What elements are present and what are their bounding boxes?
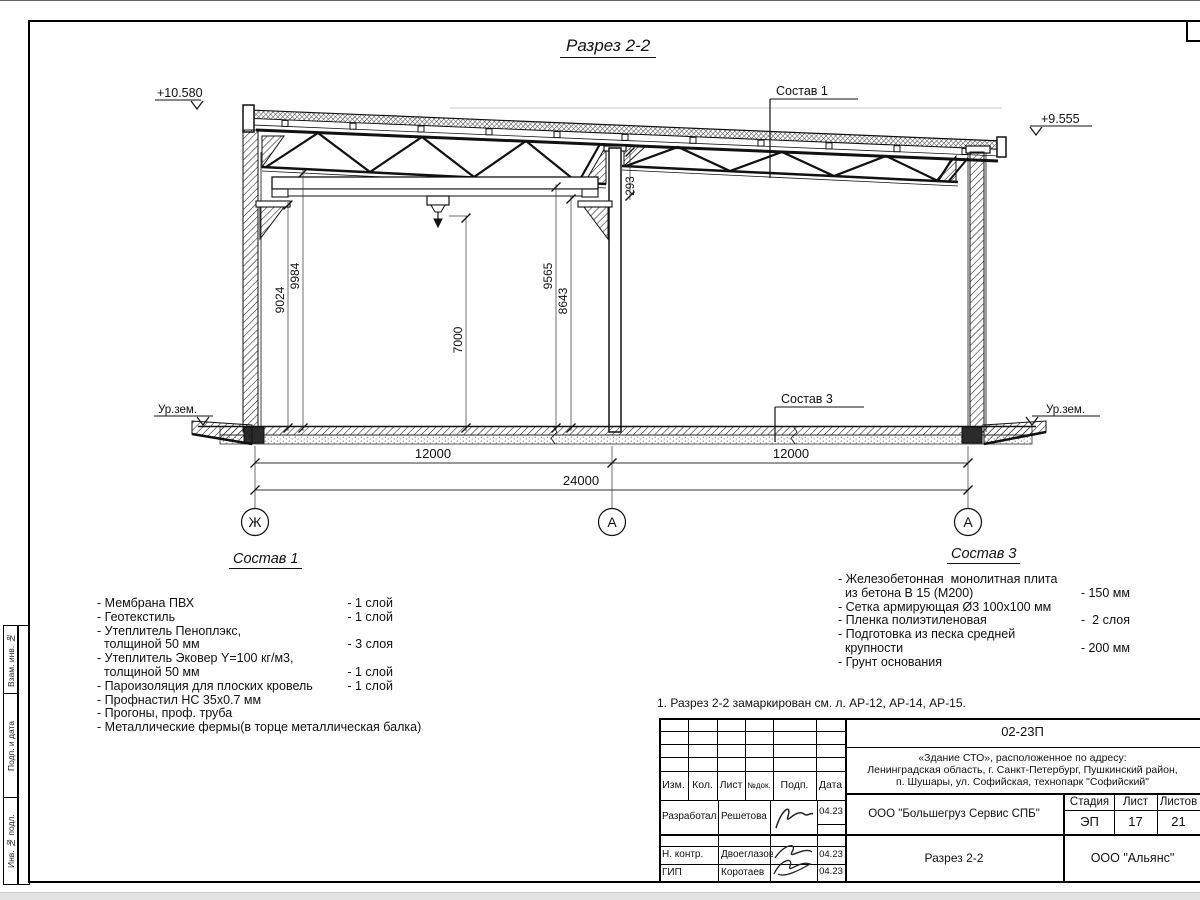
- sig-name-text: Коротаев: [721, 867, 764, 879]
- sostav3-heading-text: Состав 3: [951, 546, 1016, 562]
- left-parapet: [243, 105, 254, 132]
- list-item: - Грунт основания: [838, 656, 1130, 670]
- axis-letters: Ж А А: [249, 514, 974, 530]
- item-text: - Мембрана ПВХ: [97, 597, 194, 611]
- corbel-cap-right: [578, 201, 612, 207]
- leader-sostav3-label: Состав 3: [781, 392, 833, 406]
- crane-beam-end-right: [582, 189, 598, 197]
- signature-svg: [770, 800, 817, 881]
- sig-date-text: 04.23: [819, 867, 843, 878]
- ground-level-right-label: Ур.зем.: [1046, 404, 1085, 416]
- list-item: - Геотекстиль- 1 слой: [97, 611, 393, 625]
- elevation-left-value: +10.580: [157, 86, 203, 100]
- sheet-value: 17: [1128, 815, 1142, 830]
- col-header-text: Кол.: [692, 779, 713, 791]
- org-name: ООО "Большегруз Сервис СПБ": [868, 808, 1040, 821]
- elevation-right-value: +9.555: [1041, 112, 1080, 126]
- item-text: - Пленка полиэтиленовая: [838, 614, 987, 628]
- list-item: - Мембрана ПВХ- 1 слой: [97, 597, 393, 611]
- list-item: из бетона В 15 (М200)- 150 мм: [838, 587, 1130, 601]
- sig-role-text: Н. контр.: [662, 849, 703, 861]
- item-text: - Сетка армирующая Ø3 100х100 мм: [838, 601, 1051, 615]
- note-text: 1. Разрез 2-2 замаркирован см. л. АР-12,…: [657, 696, 966, 710]
- corbel-right: [584, 207, 608, 239]
- sig-date-text: 04.23: [819, 807, 843, 818]
- item-text: - Подготовка из песка средней: [838, 628, 1015, 642]
- grid-line: [659, 731, 845, 732]
- sig-name-ncontrol: Двоеглазов: [718, 846, 773, 864]
- walls: [243, 105, 990, 432]
- corbel-left: [260, 207, 284, 239]
- col-header-data: Дата: [816, 771, 845, 800]
- corbel-cap-left: [256, 201, 290, 207]
- col-header-text: №док.: [747, 781, 770, 790]
- item-text: - Грунт основания: [838, 656, 942, 670]
- sostav3-heading: Состав 3: [947, 546, 1020, 564]
- right-wall: [970, 152, 984, 432]
- list-item: - Сетка армирующая Ø3 100х100 мм: [838, 601, 1130, 615]
- hoist-block: [431, 205, 445, 212]
- drawing-sheet: Взам. инв. № Подп. и дата Инв. № подл. Р…: [0, 0, 1200, 900]
- dim-9984: 9984: [288, 262, 302, 289]
- drawing-note: 1. Разрез 2-2 замаркирован см. л. АР-12,…: [657, 696, 966, 710]
- dim-bay-left: 12000: [415, 446, 451, 461]
- sig-name-text: Двоеглазов: [721, 849, 773, 861]
- hoist-trolley: [427, 196, 449, 205]
- sheet-label: Лист: [1123, 796, 1148, 809]
- address-line: Ленинградская область, г. Санкт-Петербур…: [867, 764, 1177, 776]
- col-header-list: Лист: [717, 771, 745, 800]
- middle-column: [609, 148, 621, 432]
- grid-line: [817, 824, 845, 825]
- hoist-hook: [434, 219, 442, 227]
- crane-beam-body: [272, 177, 598, 189]
- sig-role-developer: Разработал: [659, 800, 721, 834]
- bottom-chord-right-bay: [622, 166, 958, 182]
- sostav1-heading: Состав 1: [229, 551, 302, 569]
- col-header-text: Дата: [819, 779, 842, 791]
- title-block: Изм. Кол. Лист №док. Подп. Дата Разработ…: [659, 718, 1200, 883]
- item-text: - Утеплитель Пеноплэкс,: [97, 625, 241, 639]
- list-item: крупности- 200 мм: [838, 642, 1130, 656]
- project-code: 02-23П: [1001, 725, 1044, 740]
- dim-9565: 9565: [541, 262, 555, 289]
- item-text: толщиной 50 мм: [97, 638, 200, 652]
- item-qty: - 1 слой: [347, 666, 393, 680]
- sostav3-list: - Железобетонная монолитная плита из бет…: [838, 573, 1130, 670]
- col-header-kol: Кол.: [688, 771, 717, 800]
- item-text: - Геотекстиль: [97, 611, 175, 625]
- sig-name-developer: Решетова: [718, 800, 773, 834]
- col-header-text: Изм.: [662, 779, 685, 791]
- foundation-right: [962, 427, 982, 443]
- crane-beam-flange: [288, 189, 582, 196]
- axis-letter-left: Ж: [249, 514, 262, 530]
- slab-sand-band: [220, 435, 1032, 444]
- org-cell: ООО "Большегруз Сервис СПБ": [845, 795, 1063, 834]
- item-qty: - 3 слоя: [348, 638, 393, 652]
- grid-line: [659, 744, 845, 745]
- sig-date-text: 04.23: [819, 850, 843, 861]
- sig-role-gip: ГИП: [659, 864, 721, 881]
- company-name: ООО "Альянс": [1091, 851, 1175, 865]
- address-line: п. Шушары, ул. Софийская, технопарк "Соф…: [896, 776, 1149, 788]
- item-text: - Пароизоляция для плоских кровель: [97, 680, 313, 694]
- axis-letter-mid: А: [607, 514, 617, 530]
- item-text: из бетона В 15 (М200): [838, 587, 973, 601]
- elevation-left-arrow: [191, 101, 203, 109]
- signature-1: [776, 809, 813, 828]
- sig-date-developer: 04.23: [817, 800, 845, 824]
- col-header-izm: Изм.: [659, 771, 688, 800]
- stage-value: ЭП: [1080, 815, 1099, 830]
- col-header-ndok: №док.: [745, 771, 773, 800]
- sig-name-text: Решетова: [721, 811, 767, 823]
- list-item: толщиной 50 мм- 3 слоя: [97, 638, 393, 652]
- item-text: - Профнастил НС 35х0.7 мм: [97, 694, 261, 708]
- project-address-cell: «Здание СТО», расположенное по адресу: Л…: [845, 747, 1200, 793]
- list-item: - Железобетонная монолитная плита: [838, 573, 1130, 587]
- list-item: - Утеплитель Эковер Y=100 кг/м3,: [97, 652, 393, 666]
- stage-header-cell: Стадия: [1065, 795, 1114, 810]
- bottom-chord-right-inner: [622, 170, 958, 186]
- stage-value-cell: ЭП: [1065, 810, 1114, 834]
- sig-name-gip: Коротаев: [718, 864, 773, 881]
- elevation-right-arrow: [1030, 127, 1042, 135]
- leader-sostav1-label: Состав 1: [776, 84, 828, 98]
- horizontal-dimensions: [251, 446, 973, 509]
- sheets-value: 21: [1171, 815, 1185, 830]
- address-line: «Здание СТО», расположенное по адресу:: [918, 752, 1126, 764]
- sostav1-list: - Мембрана ПВХ- 1 слой - Геотекстиль- 1 …: [97, 597, 393, 735]
- hoist: [427, 196, 467, 227]
- item-qty: - 2 слоя: [1081, 614, 1130, 628]
- sheets-value-cell: 21: [1157, 810, 1200, 834]
- item-qty: - 150 мм: [1081, 587, 1130, 601]
- sig-role-ncontrol: Н. контр.: [659, 846, 721, 864]
- dim-total: 24000: [563, 473, 599, 488]
- signature-strokes: [770, 800, 817, 881]
- sheet-value-cell: 17: [1114, 810, 1157, 834]
- sheet-header-cell: Лист: [1114, 795, 1157, 810]
- item-qty: - 200 мм: [1081, 642, 1130, 656]
- dim-9024: 9024: [273, 286, 287, 313]
- list-item: - Подготовка из песка средней: [838, 628, 1130, 642]
- sostav1-heading-text: Состав 1: [233, 551, 298, 567]
- roof-right-end-plate: [997, 137, 1006, 157]
- grid-line: [659, 881, 1200, 883]
- col-header-text: Лист: [720, 779, 743, 791]
- ground-level-left-label: Ур.зем.: [158, 404, 197, 416]
- item-qty: - 1 слой: [347, 611, 393, 625]
- crane-beam-end-left: [272, 189, 288, 197]
- slab-concrete-band: [220, 427, 1032, 436]
- company-cell: ООО "Альянс": [1065, 836, 1200, 881]
- sheet-title: Разрез 2-2: [925, 852, 984, 866]
- grid-line: [659, 757, 845, 758]
- sheets-header-cell: Листов: [1157, 795, 1200, 810]
- col-header-text: Подп.: [781, 779, 809, 791]
- dim-8643: 8643: [556, 287, 570, 314]
- signature-3: [774, 860, 810, 875]
- left-wall: [243, 130, 258, 432]
- project-code-cell: 02-23П: [845, 718, 1200, 747]
- dim-7000: 7000: [451, 326, 465, 353]
- list-item: - Профнастил НС 35х0.7 мм: [97, 694, 393, 708]
- sig-role-text: Разработал: [662, 811, 716, 823]
- sig-date-gip: 04.23: [817, 864, 845, 881]
- item-text: крупности: [838, 642, 903, 656]
- list-item: - Утеплитель Пеноплэкс,: [97, 625, 393, 639]
- signature-2: [775, 846, 812, 858]
- list-item: толщиной 50 мм- 1 слой: [97, 666, 393, 680]
- axis-letter-right: А: [963, 514, 973, 530]
- item-qty: - 1 слой: [347, 680, 393, 694]
- list-item: - Металлические фермы(в торце металличес…: [97, 721, 393, 735]
- sheet-title-cell: Разрез 2-2: [845, 836, 1063, 881]
- list-item: - Прогоны, проф. труба: [97, 707, 393, 721]
- dim-bay-right: 12000: [773, 446, 809, 461]
- item-text: - Металлические фермы(в торце металличес…: [97, 721, 421, 735]
- item-text: - Железобетонная монолитная плита: [838, 573, 1057, 587]
- sig-date-ncontrol: 04.23: [817, 846, 845, 864]
- item-text: толщиной 50 мм: [97, 666, 200, 680]
- item-text: - Утеплитель Эковер Y=100 кг/м3,: [97, 652, 293, 666]
- list-item: - Пленка полиэтиленовая- 2 слоя: [838, 614, 1130, 628]
- item-text: - Прогоны, проф. труба: [97, 707, 232, 721]
- sig-role-text: ГИП: [662, 867, 682, 879]
- list-item: - Пароизоляция для плоских кровель- 1 сл…: [97, 680, 393, 694]
- item-qty: - 1 слой: [347, 597, 393, 611]
- dim-293: 293: [625, 176, 637, 195]
- stage-label: Стадия: [1070, 796, 1109, 809]
- col-header-podp: Подп.: [773, 771, 816, 800]
- sheets-label: Листов: [1160, 796, 1197, 809]
